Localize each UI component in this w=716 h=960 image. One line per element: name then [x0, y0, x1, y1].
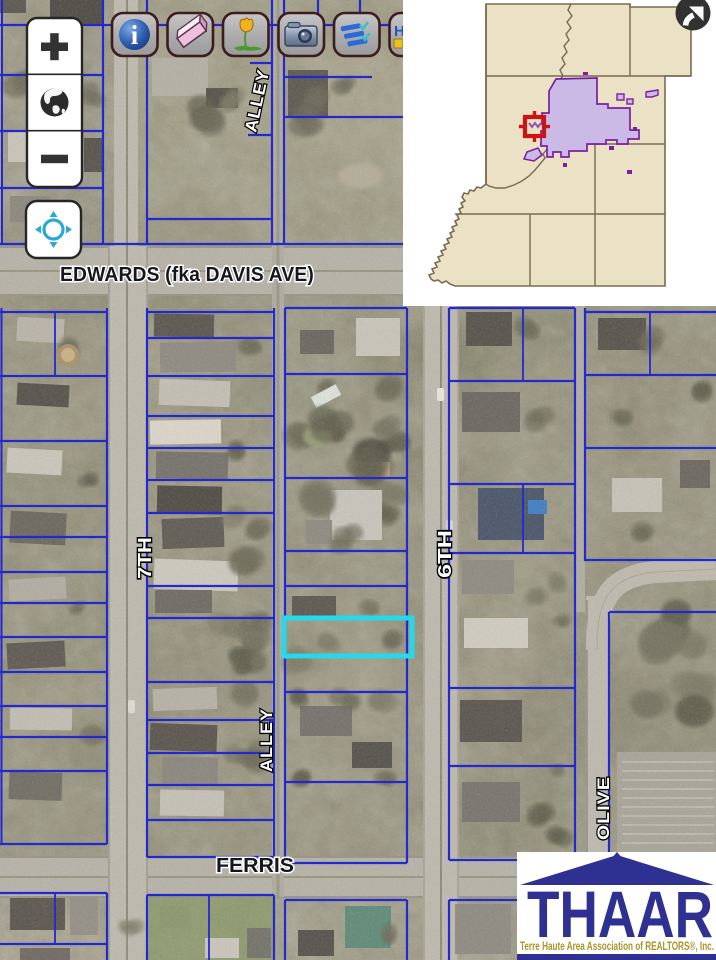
- svg-text:i: i: [131, 20, 139, 50]
- svg-text:OLIVE: OLIVE: [594, 776, 613, 840]
- svg-text:Terre Haute Area Association o: Terre Haute Area Association of REALTORS…: [520, 939, 714, 953]
- svg-text:ALLEY: ALLEY: [257, 708, 276, 772]
- svg-text:FERRIS: FERRIS: [216, 854, 294, 877]
- svg-text:7TH: 7TH: [135, 537, 155, 579]
- svg-text:6TH: 6TH: [435, 530, 455, 578]
- svg-text:EDWARDS (fka DAVIS AVE): EDWARDS (fka DAVIS AVE): [60, 263, 314, 286]
